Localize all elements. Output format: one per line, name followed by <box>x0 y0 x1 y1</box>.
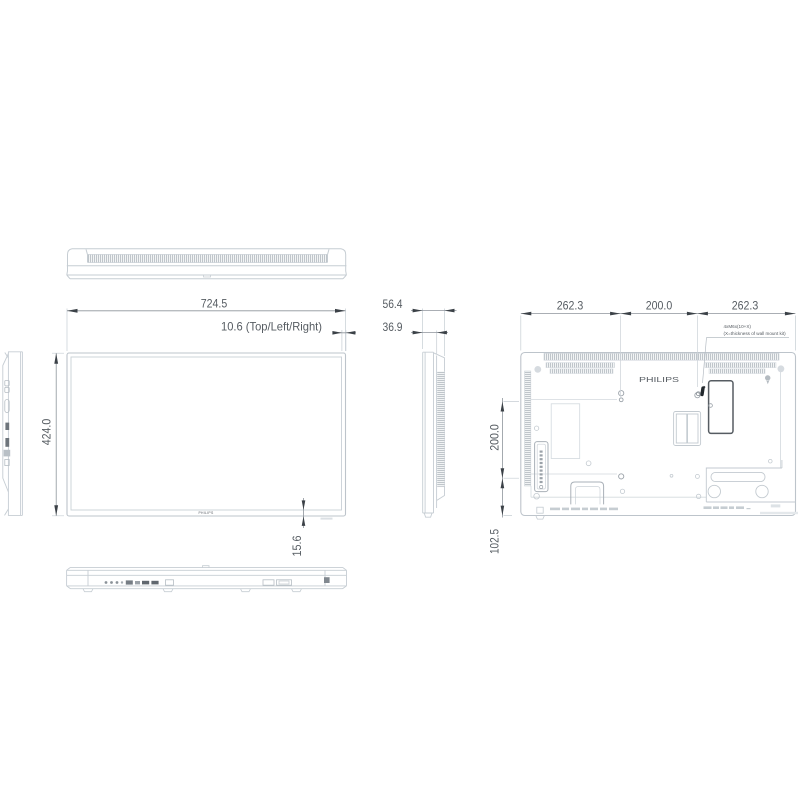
svg-text:262.3: 262.3 <box>732 298 759 312</box>
svg-text:262.3: 262.3 <box>557 298 584 312</box>
svg-text:724.5: 724.5 <box>201 297 228 311</box>
svg-text:56.4: 56.4 <box>383 297 403 311</box>
svg-text:200.0: 200.0 <box>646 298 673 312</box>
svg-text:(X=thickness of wall mount kit: (X=thickness of wall mount kit) <box>724 331 787 336</box>
svg-text:200.0: 200.0 <box>487 424 501 451</box>
svg-text:PHILIPS: PHILIPS <box>198 511 214 515</box>
svg-text:10.6 (Top/Left/Right): 10.6 (Top/Left/Right) <box>221 320 322 334</box>
svg-text:424.0: 424.0 <box>40 418 54 445</box>
svg-text:4xM6x(10+X): 4xM6x(10+X) <box>724 324 752 329</box>
svg-text:102.5: 102.5 <box>487 529 501 554</box>
svg-text:15.6: 15.6 <box>290 535 304 556</box>
svg-text:36.9: 36.9 <box>383 320 403 334</box>
svg-text:PHILIPS: PHILIPS <box>639 375 679 384</box>
